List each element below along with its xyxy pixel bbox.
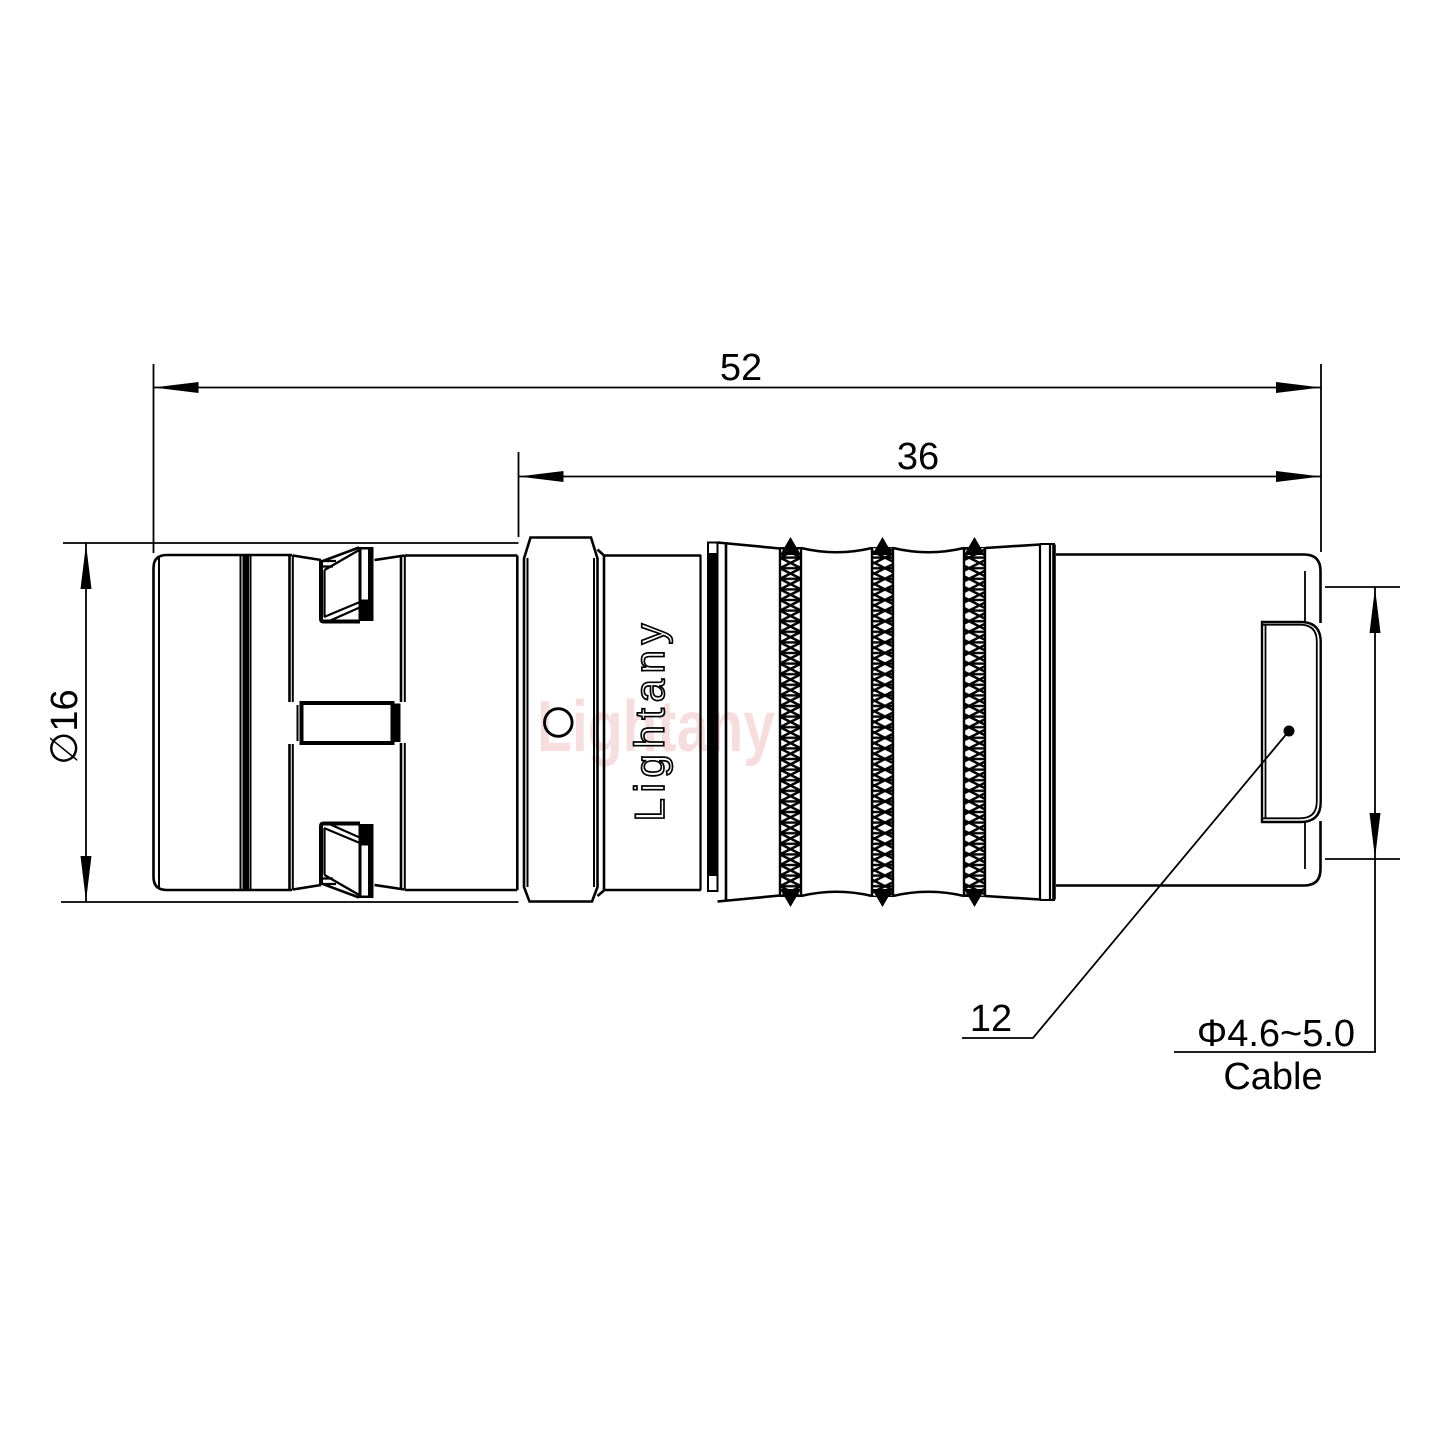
svg-text:Cable: Cable (1223, 1056, 1322, 1098)
svg-text:52: 52 (720, 347, 762, 389)
svg-text:36: 36 (897, 436, 939, 478)
svg-text:Φ4.6~5.0: Φ4.6~5.0 (1197, 1013, 1355, 1055)
svg-text:∅16: ∅16 (44, 689, 86, 764)
svg-text:12: 12 (970, 998, 1012, 1040)
